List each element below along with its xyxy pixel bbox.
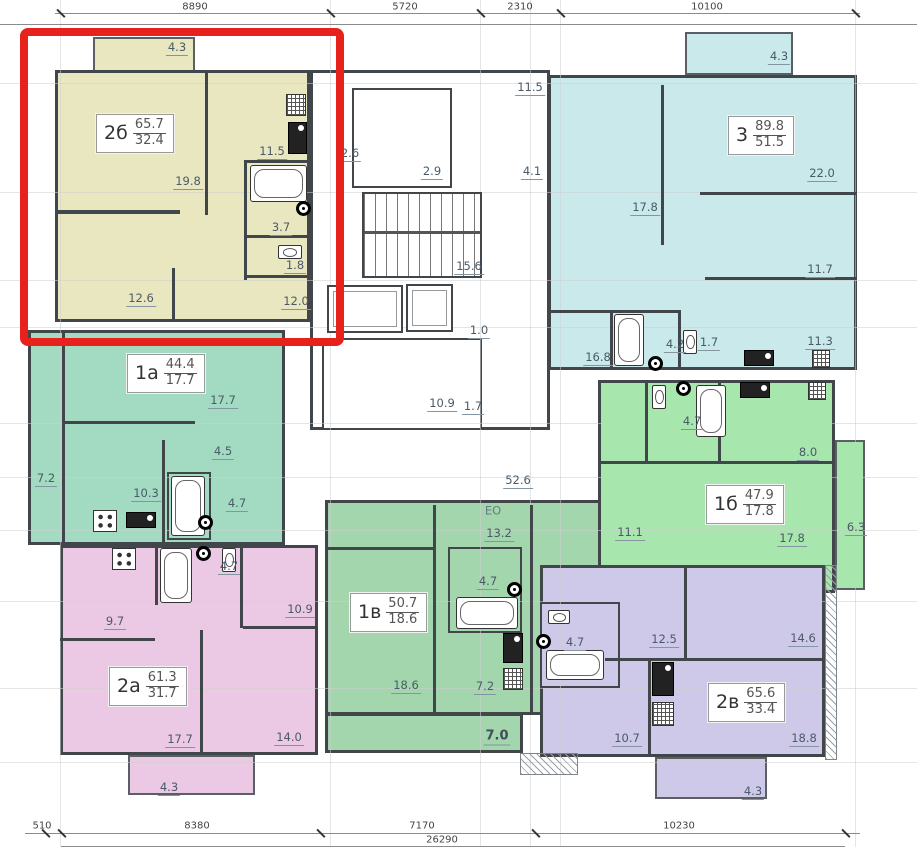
apartment-2a-badge: 2а 61.3 31.7 [109, 667, 187, 706]
wall [243, 626, 318, 629]
room-label: 18.8 [789, 731, 819, 747]
apartment-1a-badge: 1а 44.4 17.7 [127, 354, 205, 393]
outer-wall [825, 565, 837, 760]
bathtub-icon [160, 548, 192, 603]
toilet-icon [548, 610, 570, 624]
washer-icon [198, 515, 213, 530]
room-label: 14.0 [274, 730, 304, 746]
core-label: 15.6 [454, 259, 484, 275]
apartment-1b-balcony [835, 440, 865, 590]
elevator-shaft [406, 284, 453, 332]
dim-bottom-8380: 8380 [184, 821, 209, 832]
apartment-1b-badge: 1б 47.9 17.8 [706, 485, 784, 524]
apartment-1v-areas: 50.7 18.6 [386, 597, 419, 628]
bathtub-icon [546, 650, 604, 680]
grid-line [855, 0, 856, 847]
room-label: 17.8 [630, 200, 660, 216]
kitchen-sink-icon [744, 350, 774, 366]
room-label: 10.7 [612, 731, 642, 747]
wall [645, 380, 648, 463]
apartment-3-number: 3 [736, 126, 748, 145]
grid-line [530, 0, 531, 847]
living-area: 51.5 [755, 136, 784, 151]
wall [62, 330, 65, 545]
room-label: 4.7 [477, 574, 499, 590]
kitchen-sink-icon [740, 382, 770, 398]
room-label: 13.2 [484, 526, 514, 542]
wall [325, 547, 435, 550]
room-label: 17.7 [208, 393, 238, 409]
dimension-line [55, 13, 860, 14]
core-label: 11.5 [515, 80, 545, 96]
dim-top-2310: 2310 [507, 2, 532, 13]
toilet-icon [652, 385, 666, 409]
apartment-2v-badge: 2в 65.6 33.4 [708, 683, 785, 722]
kitchen-sink-icon [652, 662, 674, 696]
apartment-2v-areas: 65.6 33.4 [744, 687, 777, 718]
washer-icon [196, 546, 211, 561]
wall [598, 461, 835, 464]
living-area: 17.7 [166, 374, 195, 389]
entrance-porch [520, 753, 578, 775]
dim-top-5720: 5720 [392, 2, 417, 13]
stove-icon [112, 548, 136, 570]
apartment-2v-number: 2в [716, 693, 739, 712]
room-label: 1.7 [698, 335, 720, 351]
highlight-rectangle [20, 28, 344, 346]
apartment-1b-number: 1б [714, 495, 738, 514]
eo-label: ЕО [483, 504, 503, 519]
dim-bottom-510: 510 [32, 821, 51, 832]
dim-bottom-7170: 7170 [409, 821, 434, 832]
grid-line [0, 762, 917, 763]
wall [155, 545, 158, 605]
wall [648, 660, 651, 757]
living-area: 17.8 [745, 505, 774, 520]
wall [661, 85, 664, 245]
room-label: 4.3 [158, 780, 180, 796]
room-label: 7.2 [474, 679, 496, 695]
apartment-3-areas: 89.8 51.5 [753, 120, 786, 151]
core-label: 10.9 [427, 396, 457, 412]
dim-bottom-10230: 10230 [663, 821, 695, 832]
core-label: 1.0 [468, 323, 490, 339]
room-label: 4.2 [664, 337, 686, 353]
wall [200, 630, 203, 755]
washer-icon [536, 634, 551, 649]
vent-grid-icon [503, 668, 523, 690]
room-label: 6.3 [845, 520, 867, 536]
room-label: 10.3 [131, 486, 161, 502]
room-label: 7.0 [483, 729, 510, 746]
entry-vestibule [322, 338, 482, 430]
apartment-1a-number: 1а [135, 364, 159, 383]
core-label: 1.7 [462, 399, 484, 415]
living-area: 33.4 [746, 703, 775, 718]
room-label: 4.7 [564, 635, 586, 651]
floor-plan: 8890 5720 2310 10100 510 8380 7170 10230… [0, 0, 917, 847]
washer-icon [648, 356, 663, 371]
wall [162, 440, 165, 545]
core-label: 4.1 [521, 164, 543, 180]
dim-top-8890: 8890 [182, 2, 207, 13]
room-label: 11.3 [805, 334, 835, 350]
apartment-1v-badge: 1в 50.7 18.6 [350, 593, 427, 632]
wall [62, 421, 195, 424]
grid-line [560, 0, 561, 847]
room-label: 4.3 [742, 784, 764, 800]
room-label: 4.3 [768, 49, 790, 65]
apartment-3-badge: 3 89.8 51.5 [728, 116, 794, 155]
apartment-2a-number: 2а [117, 677, 141, 696]
wall [530, 505, 533, 715]
room-label: 4.7 [218, 559, 240, 575]
total-area: 61.3 [146, 671, 179, 687]
room-label: 14.6 [788, 631, 818, 647]
dim-top-10100: 10100 [691, 2, 723, 13]
floor-area-label: 52.6 [503, 473, 533, 489]
kitchen-sink-icon [503, 633, 523, 663]
room-label: 9.7 [104, 614, 126, 630]
apartment-2a-balcony [128, 755, 255, 795]
core-label: 2.9 [421, 164, 443, 180]
apartment-1b-areas: 47.9 17.8 [743, 489, 776, 520]
room-label: 11.1 [615, 525, 645, 541]
stair-landing [364, 231, 480, 234]
bathtub-icon [614, 314, 644, 366]
vent-grid-icon [808, 382, 826, 400]
room-label: 11.7 [805, 262, 835, 278]
apartment-1a-areas: 44.4 17.7 [164, 358, 197, 389]
room-label: 10.9 [285, 602, 315, 618]
room-label: 17.7 [165, 732, 195, 748]
room-label: 18.6 [391, 678, 421, 694]
dim-bottom-total: 26290 [426, 835, 458, 846]
room-label: 4.5 [212, 444, 234, 460]
bathtub-icon [456, 597, 518, 629]
living-area: 18.6 [388, 613, 417, 628]
total-area: 65.6 [744, 687, 777, 703]
living-area: 31.7 [148, 687, 177, 702]
wall [700, 192, 857, 195]
stove-icon [93, 510, 117, 532]
apartment-3-area[interactable] [548, 75, 857, 370]
vent-grid-icon [812, 350, 830, 368]
room-label: 4.7 [226, 496, 248, 512]
total-area: 44.4 [164, 358, 197, 374]
grid-line [480, 0, 481, 847]
wall [240, 545, 243, 628]
room-label: 12.5 [649, 632, 679, 648]
room-label: 17.8 [777, 531, 807, 547]
room-label: 16.8 [583, 350, 613, 366]
washer-icon [507, 582, 522, 597]
room-label: 4.7 [681, 414, 703, 430]
kitchen-sink-icon [126, 512, 156, 528]
room-label: 8.0 [797, 445, 819, 461]
apartment-1v-number: 1в [358, 603, 381, 622]
grid-line [0, 477, 917, 478]
apartment-2a-areas: 61.3 31.7 [146, 671, 179, 702]
wall [684, 565, 687, 660]
vent-grid-icon [652, 702, 674, 726]
room-label: 7.2 [35, 471, 57, 487]
room-label: 22.0 [807, 166, 837, 182]
dimension-line [0, 24, 917, 25]
wall [433, 505, 436, 715]
wall [548, 310, 678, 313]
total-area: 89.8 [753, 120, 786, 136]
washer-icon [676, 381, 691, 396]
wall [605, 658, 825, 661]
wall [60, 638, 155, 641]
total-area: 47.9 [743, 489, 776, 505]
total-area: 50.7 [386, 597, 419, 613]
